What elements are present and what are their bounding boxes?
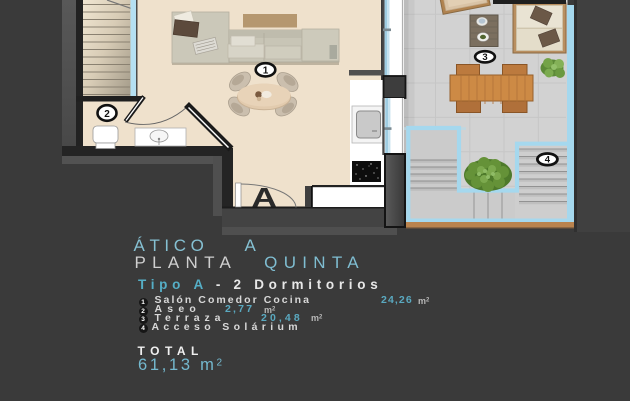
svg-text:A: A <box>252 182 277 212</box>
svg-text:3: 3 <box>482 52 487 63</box>
svg-text:2: 2 <box>104 109 110 120</box>
svg-text:4: 4 <box>545 155 551 166</box>
svg-text:1: 1 <box>263 65 269 76</box>
